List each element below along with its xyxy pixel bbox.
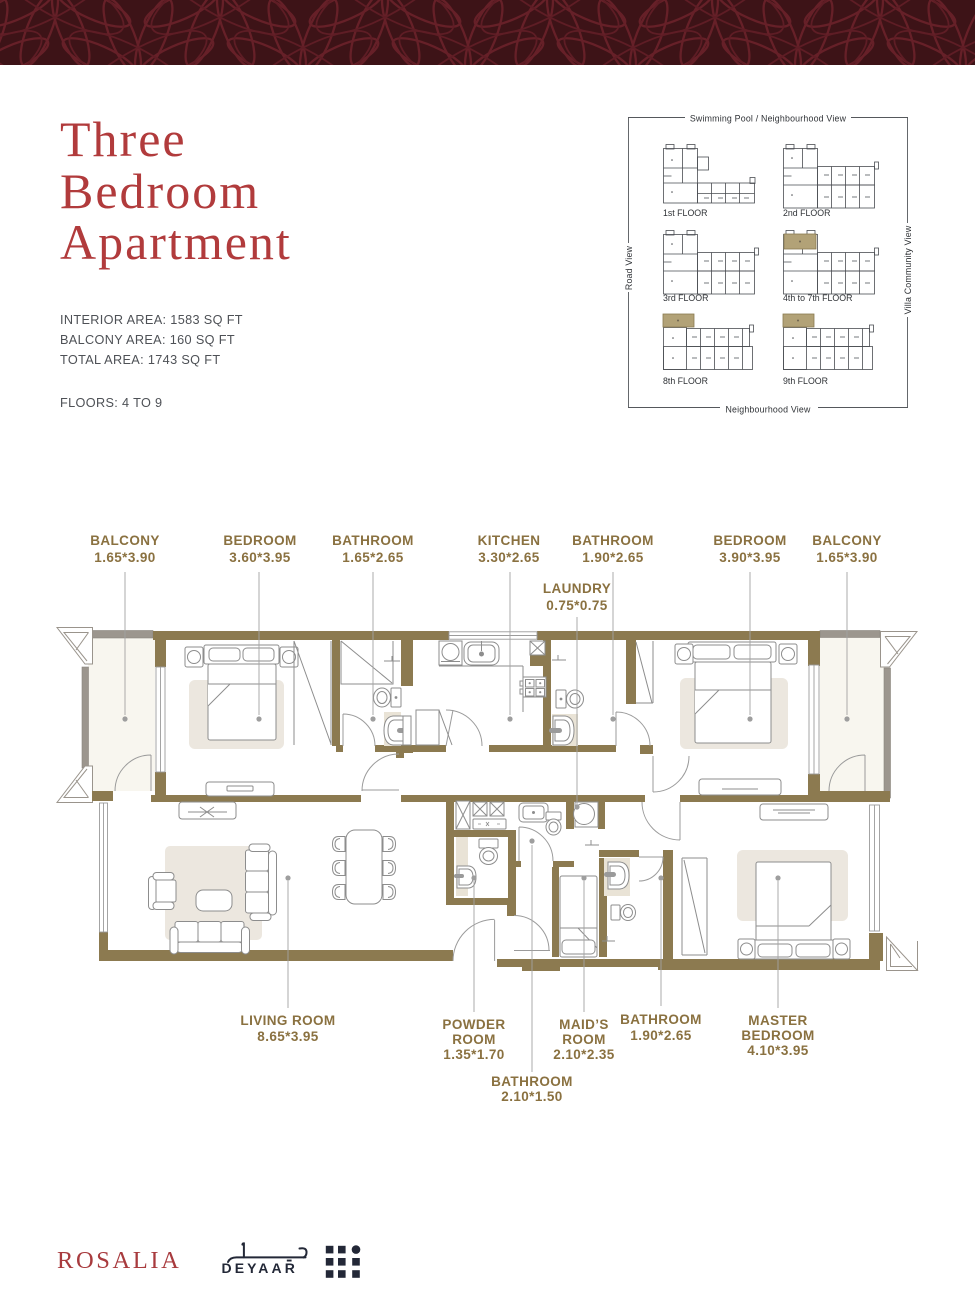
svg-text:BEDROOM: BEDROOM — [223, 533, 296, 548]
svg-text:LAUNDRY: LAUNDRY — [543, 581, 611, 596]
svg-text:BALCONY: BALCONY — [90, 533, 160, 548]
svg-text:Road View: Road View — [624, 245, 634, 290]
svg-text:BATHROOM: BATHROOM — [491, 1074, 573, 1089]
svg-text:MASTER: MASTER — [748, 1013, 807, 1028]
svg-text:4.10*3.95: 4.10*3.95 — [747, 1043, 808, 1058]
svg-text:BATHROOM: BATHROOM — [572, 533, 654, 548]
svg-text:BATHROOM: BATHROOM — [332, 533, 414, 548]
svg-text:8.65*3.95: 8.65*3.95 — [257, 1029, 318, 1044]
svg-text:1.65*2.65: 1.65*2.65 — [342, 550, 403, 565]
svg-text:2nd FLOOR: 2nd FLOOR — [783, 208, 830, 218]
svg-text:1st FLOOR: 1st FLOOR — [663, 208, 707, 218]
svg-text:POWDER: POWDER — [442, 1017, 505, 1032]
svg-text:Swimming Pool / Neighbourhood: Swimming Pool / Neighbourhood View — [690, 114, 847, 124]
svg-text:4th to 7th FLOOR: 4th to 7th FLOOR — [783, 293, 852, 303]
svg-text:1.65*3.90: 1.65*3.90 — [94, 550, 155, 565]
svg-text:3.60*3.95: 3.60*3.95 — [229, 550, 290, 565]
svg-text:BEDROOM: BEDROOM — [741, 1028, 814, 1043]
svg-text:3.30*2.65: 3.30*2.65 — [478, 550, 539, 565]
svg-text:2.10*1.50: 2.10*1.50 — [501, 1089, 562, 1104]
svg-text:BEDROOM: BEDROOM — [713, 533, 786, 548]
svg-text:0.75*0.75: 0.75*0.75 — [546, 598, 607, 613]
svg-text:3.90*3.95: 3.90*3.95 — [719, 550, 780, 565]
svg-text:KITCHEN: KITCHEN — [478, 533, 541, 548]
svg-text:Villa Community View: Villa Community View — [903, 225, 913, 314]
svg-text:9th FLOOR: 9th FLOOR — [783, 376, 828, 386]
svg-text:3rd FLOOR: 3rd FLOOR — [663, 293, 708, 303]
svg-text:DEYAAR: DEYAAR — [222, 1260, 298, 1276]
svg-text:LIVING ROOM: LIVING ROOM — [240, 1013, 335, 1028]
svg-text:BALCONY: BALCONY — [812, 533, 882, 548]
svg-text:ROOM: ROOM — [452, 1032, 496, 1047]
svg-text:2.10*2.35: 2.10*2.35 — [553, 1047, 614, 1062]
svg-text:1.65*3.90: 1.65*3.90 — [816, 550, 877, 565]
svg-text:8th FLOOR: 8th FLOOR — [663, 376, 708, 386]
svg-text:1.90*2.65: 1.90*2.65 — [582, 550, 643, 565]
svg-text:1.90*2.65: 1.90*2.65 — [630, 1028, 691, 1043]
svg-text:MAID’S: MAID’S — [559, 1017, 609, 1032]
svg-text:Neighbourhood View: Neighbourhood View — [725, 405, 811, 415]
svg-text:BATHROOM: BATHROOM — [620, 1012, 702, 1027]
svg-text:ROOM: ROOM — [562, 1032, 606, 1047]
svg-text:1.35*1.70: 1.35*1.70 — [443, 1047, 504, 1062]
